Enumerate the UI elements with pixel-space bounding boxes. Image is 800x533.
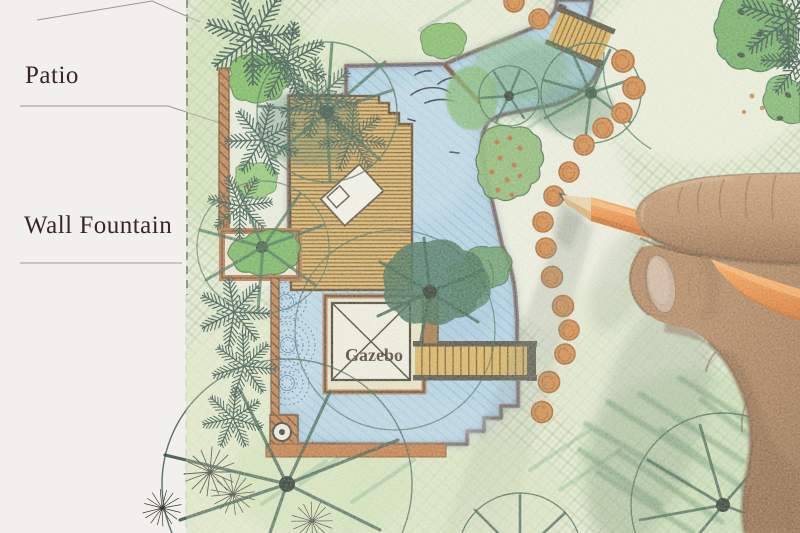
svg-text:Wall Fountain: Wall Fountain <box>24 212 172 239</box>
svg-text:Patio: Patio <box>25 62 79 89</box>
